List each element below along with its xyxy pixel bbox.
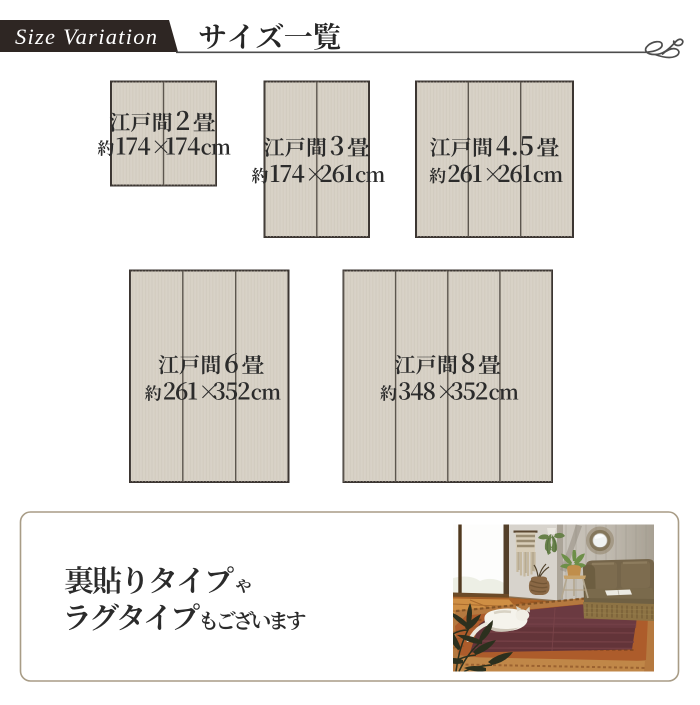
svg-text:Size Variation: Size Variation bbox=[15, 24, 157, 49]
